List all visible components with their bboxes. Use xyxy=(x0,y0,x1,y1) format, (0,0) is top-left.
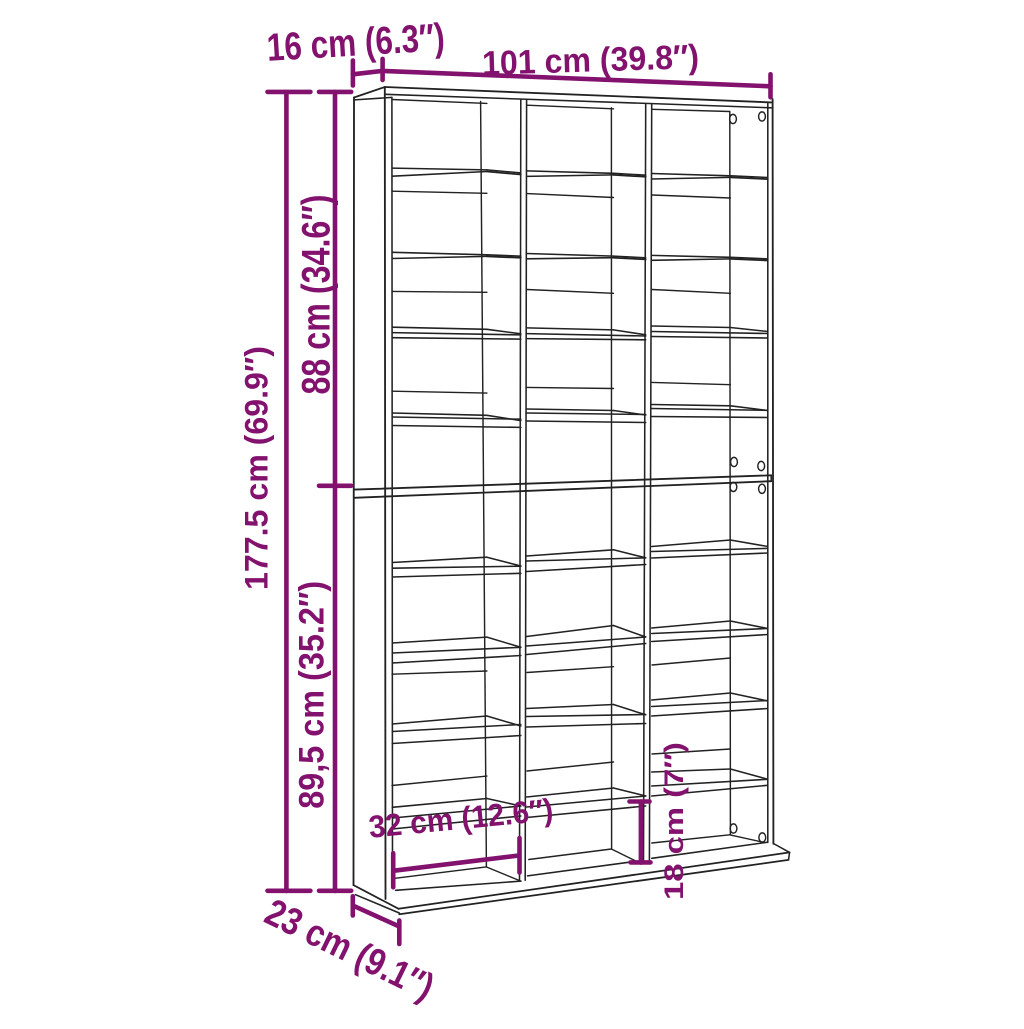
svg-text:18 cm (7″): 18 cm (7″) xyxy=(659,742,689,900)
svg-text:101 cm (39.8″): 101 cm (39.8″) xyxy=(482,38,700,83)
svg-text:177.5 cm (69.9″): 177.5 cm (69.9″) xyxy=(239,346,275,590)
svg-text:89,5 cm (35.2″): 89,5 cm (35.2″) xyxy=(293,581,332,809)
svg-text:88 cm (34.6″): 88 cm (34.6″) xyxy=(295,195,339,395)
